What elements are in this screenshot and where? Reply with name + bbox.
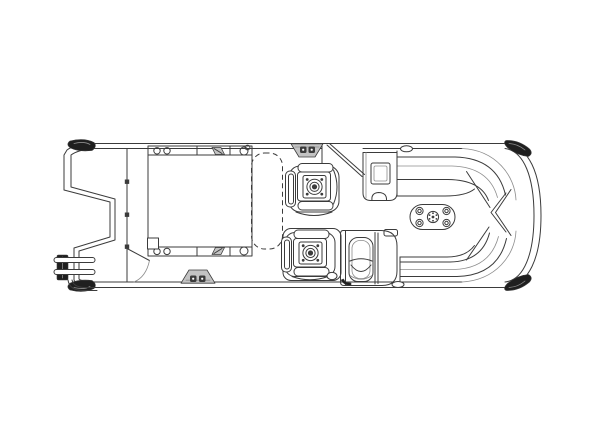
hinge-dot <box>125 180 129 184</box>
cabinet-handle <box>372 193 387 201</box>
hinge-dot <box>125 213 129 217</box>
bow-gate-swing-arc <box>134 261 150 283</box>
bow-fence-gate <box>125 149 150 282</box>
bow-profile <box>64 144 115 288</box>
helm-seat-cutout <box>349 238 373 282</box>
stern-bench-bottom <box>400 227 507 281</box>
corner-cap-stern-top <box>505 140 532 156</box>
optional-lounge-dashed <box>252 153 283 249</box>
rail-tab <box>401 146 413 152</box>
pontoon-floorplan-drawing <box>0 0 600 425</box>
corner-cap-bow-top <box>68 140 95 151</box>
steering-wheel <box>351 265 371 272</box>
stern-bench-top <box>397 146 506 208</box>
pedestal-chair-bow <box>286 164 340 216</box>
corner-cap-bow-bottom <box>68 280 95 291</box>
gate-latch-top <box>291 144 323 157</box>
stern-chevron <box>491 190 511 236</box>
bow-gate-door <box>127 249 150 261</box>
canvas <box>0 0 600 425</box>
deck-hatch <box>148 238 159 249</box>
bench-corner-cut <box>467 172 491 208</box>
stern-table <box>410 205 455 230</box>
corner-cap-stern-bottom <box>505 275 532 291</box>
gate-latch-bottom <box>181 270 215 283</box>
port-cabinet <box>363 153 397 201</box>
bow-deck-platform <box>148 146 253 256</box>
cup-holder <box>327 272 337 279</box>
rail-tab <box>392 282 404 288</box>
captain-chair <box>282 229 342 281</box>
helm-console <box>341 230 405 288</box>
